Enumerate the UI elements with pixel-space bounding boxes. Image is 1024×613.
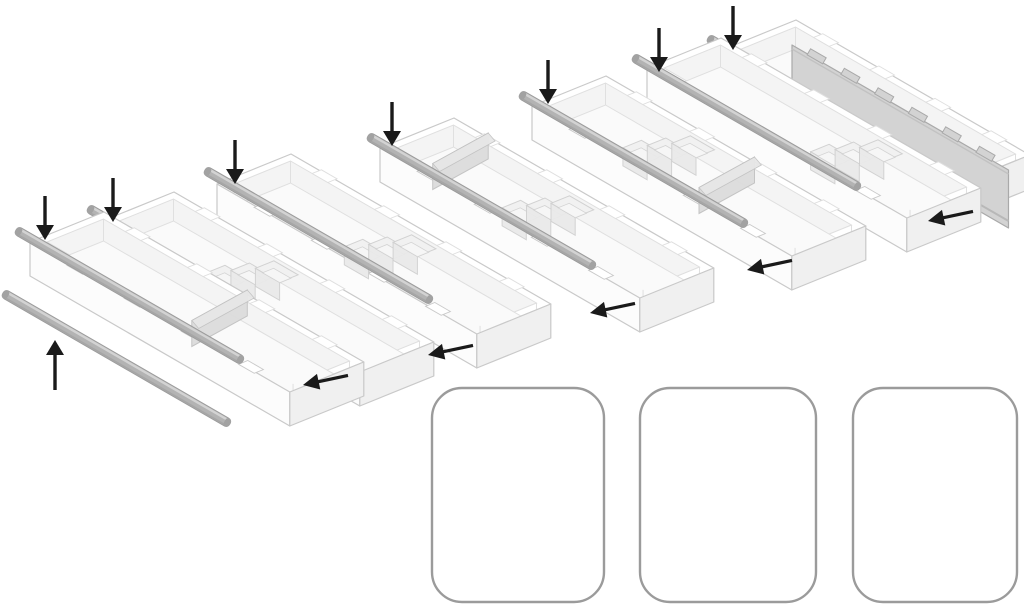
detail-clip-mount-top xyxy=(640,388,816,602)
exploded-isometric-view xyxy=(0,0,1024,613)
detail-clip-mount-side xyxy=(853,388,1017,602)
assembly-instruction-diagram xyxy=(0,0,1024,613)
detail-front-rail-hook xyxy=(432,388,604,602)
press-down-arrow-4 xyxy=(383,102,401,146)
push-up-arrow xyxy=(46,340,64,390)
